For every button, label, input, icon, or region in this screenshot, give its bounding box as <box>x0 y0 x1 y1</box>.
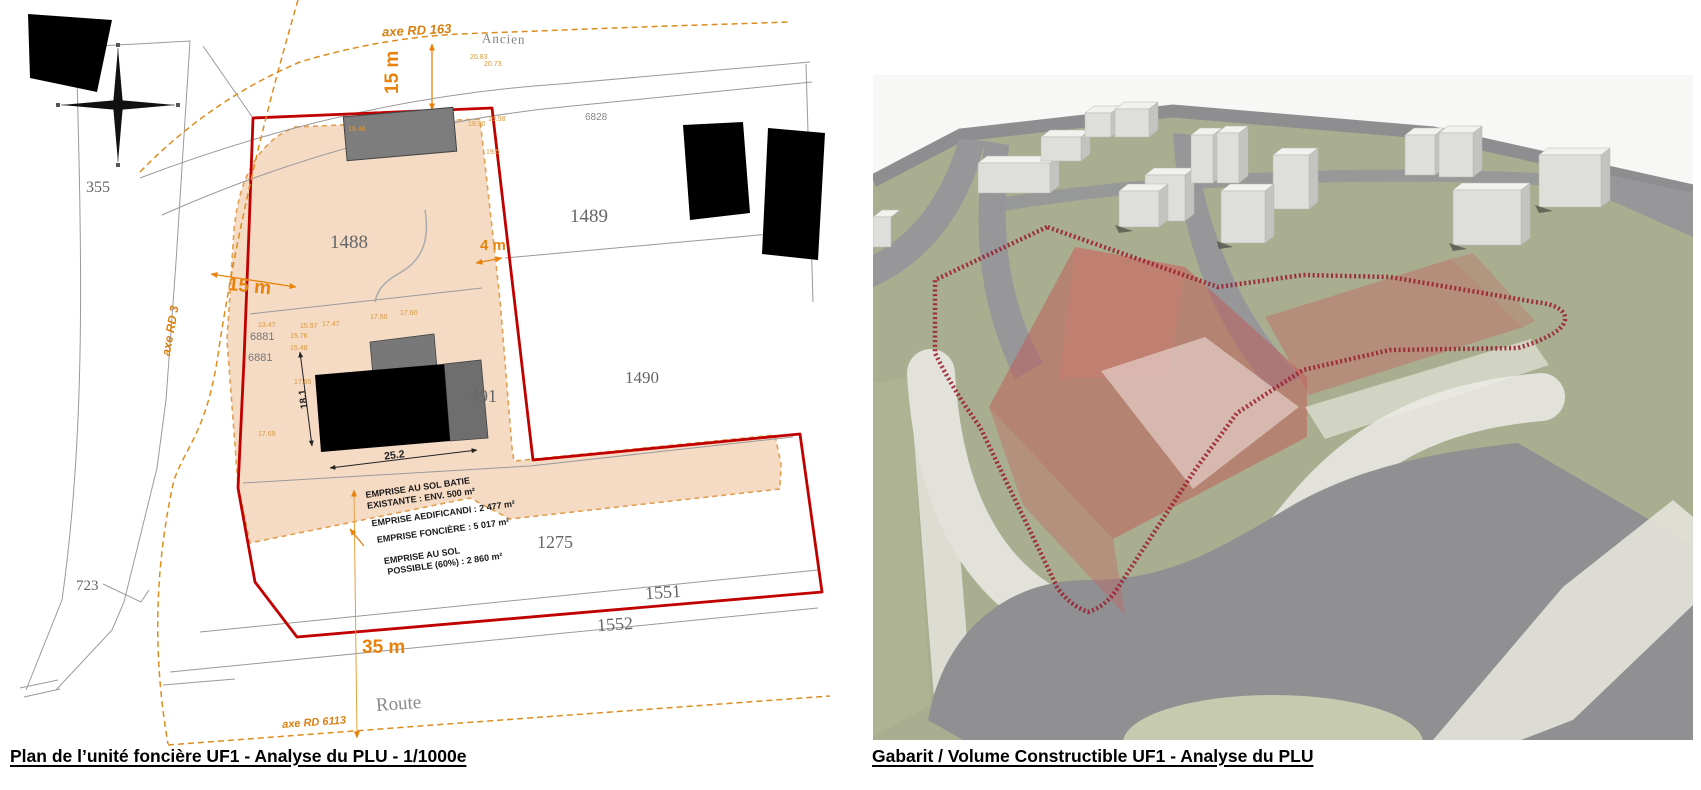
corner-mask <box>28 14 112 92</box>
dim-bottom-setback: 35 m <box>362 637 405 658</box>
label-axe-rd163: axe RD 163 <box>382 21 453 40</box>
dim-right-setback: 4 m <box>480 237 506 254</box>
parcel-6828: 6828 <box>585 112 608 123</box>
parcel-6881-a: 6881 <box>250 331 274 343</box>
elevation-label: 15.48 <box>290 345 308 352</box>
context-building <box>1217 126 1248 183</box>
elevation-label: 19.90 <box>468 121 486 128</box>
context-building <box>1405 128 1444 175</box>
elevation-label: 13.47 <box>258 322 276 329</box>
dim-building-width: 25.2 <box>383 448 405 462</box>
context-building <box>1539 148 1610 207</box>
parcel-1551: 1551 <box>644 581 681 603</box>
parcel-1552: 1552 <box>596 613 633 635</box>
elevation-label: 17.60 <box>400 310 418 317</box>
label-route: Route <box>375 692 422 716</box>
building-footprint-east-2 <box>762 128 825 260</box>
gabarit-caption: Gabarit / Volume Constructible UF1 - Ana… <box>872 746 1313 767</box>
elevation-label: 19.98 <box>488 116 506 123</box>
label-axe-rd6113: axe RD 6113 <box>282 714 347 730</box>
context-building <box>1273 148 1318 209</box>
plan-panel: 355 1488 1489 1490 491 1275 1551 1552 72… <box>0 0 830 750</box>
context-building <box>1453 183 1530 245</box>
parcel-6881-b: 6881 <box>248 352 272 364</box>
parcel-1275: 1275 <box>537 532 573 552</box>
context-building <box>1221 184 1274 243</box>
elevation-label: 19.46 <box>348 126 366 133</box>
gabarit-3d-svg <box>873 75 1693 740</box>
elevation-label: 17.50 <box>370 314 388 321</box>
parcel-1490: 1490 <box>625 368 659 387</box>
building-footprint-east-1 <box>683 122 750 220</box>
context-building <box>1439 126 1482 177</box>
elevation-label: 17.69 <box>258 431 276 438</box>
building-footprint-north <box>343 107 456 160</box>
gabarit-panel <box>873 75 1693 740</box>
parcel-355: 355 <box>86 179 110 196</box>
parcel-491: 491 <box>470 386 497 406</box>
elevation-label: 17.47 <box>322 321 340 328</box>
plan-caption: Plan de l’unité foncière UF1 - Analyse d… <box>10 746 466 767</box>
parcel-1488: 1488 <box>330 232 368 253</box>
label-ancien: Ancien <box>482 30 526 47</box>
elevation-label: 20.73 <box>484 61 502 68</box>
building-footprint-main <box>315 364 450 452</box>
elevation-label: 15.97 <box>300 323 318 330</box>
context-building <box>1119 184 1168 227</box>
elevation-label: 19.5 <box>486 149 500 156</box>
context-building <box>1115 102 1158 137</box>
parcel-723: 723 <box>76 578 99 594</box>
parcel-1489: 1489 <box>570 206 608 227</box>
context-building <box>1041 130 1090 161</box>
label-axe-rd3: axe RD 3 <box>159 304 182 357</box>
context-building <box>978 156 1059 193</box>
elevation-label: 20.83 <box>470 54 488 61</box>
elevation-label: 15.76 <box>290 333 308 340</box>
dim-top-setback: 15 m <box>382 51 403 94</box>
site-plan-svg: 355 1488 1489 1490 491 1275 1551 1552 72… <box>0 0 830 750</box>
elevation-label: 17.55 <box>294 379 312 386</box>
